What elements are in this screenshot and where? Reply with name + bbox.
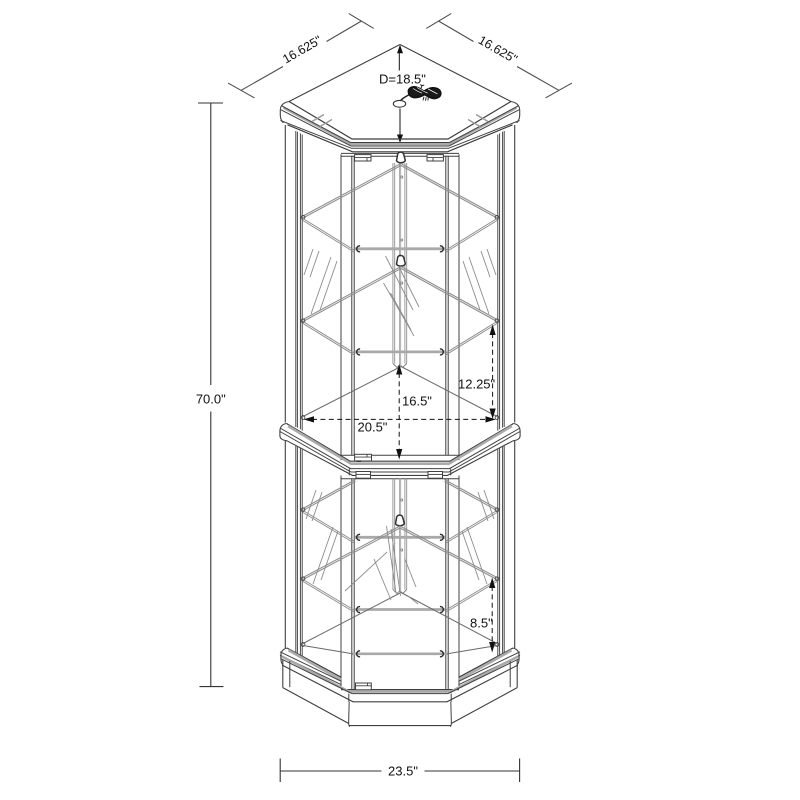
svg-text:23.5": 23.5" [388,764,418,779]
svg-text:70.0": 70.0" [196,392,226,407]
svg-text:20.5": 20.5" [358,419,388,434]
svg-text:16.5": 16.5" [402,393,432,408]
svg-text:12.25": 12.25" [458,376,496,391]
svg-text:D=18.5": D=18.5" [379,71,426,86]
svg-text:8.5": 8.5" [470,616,493,631]
